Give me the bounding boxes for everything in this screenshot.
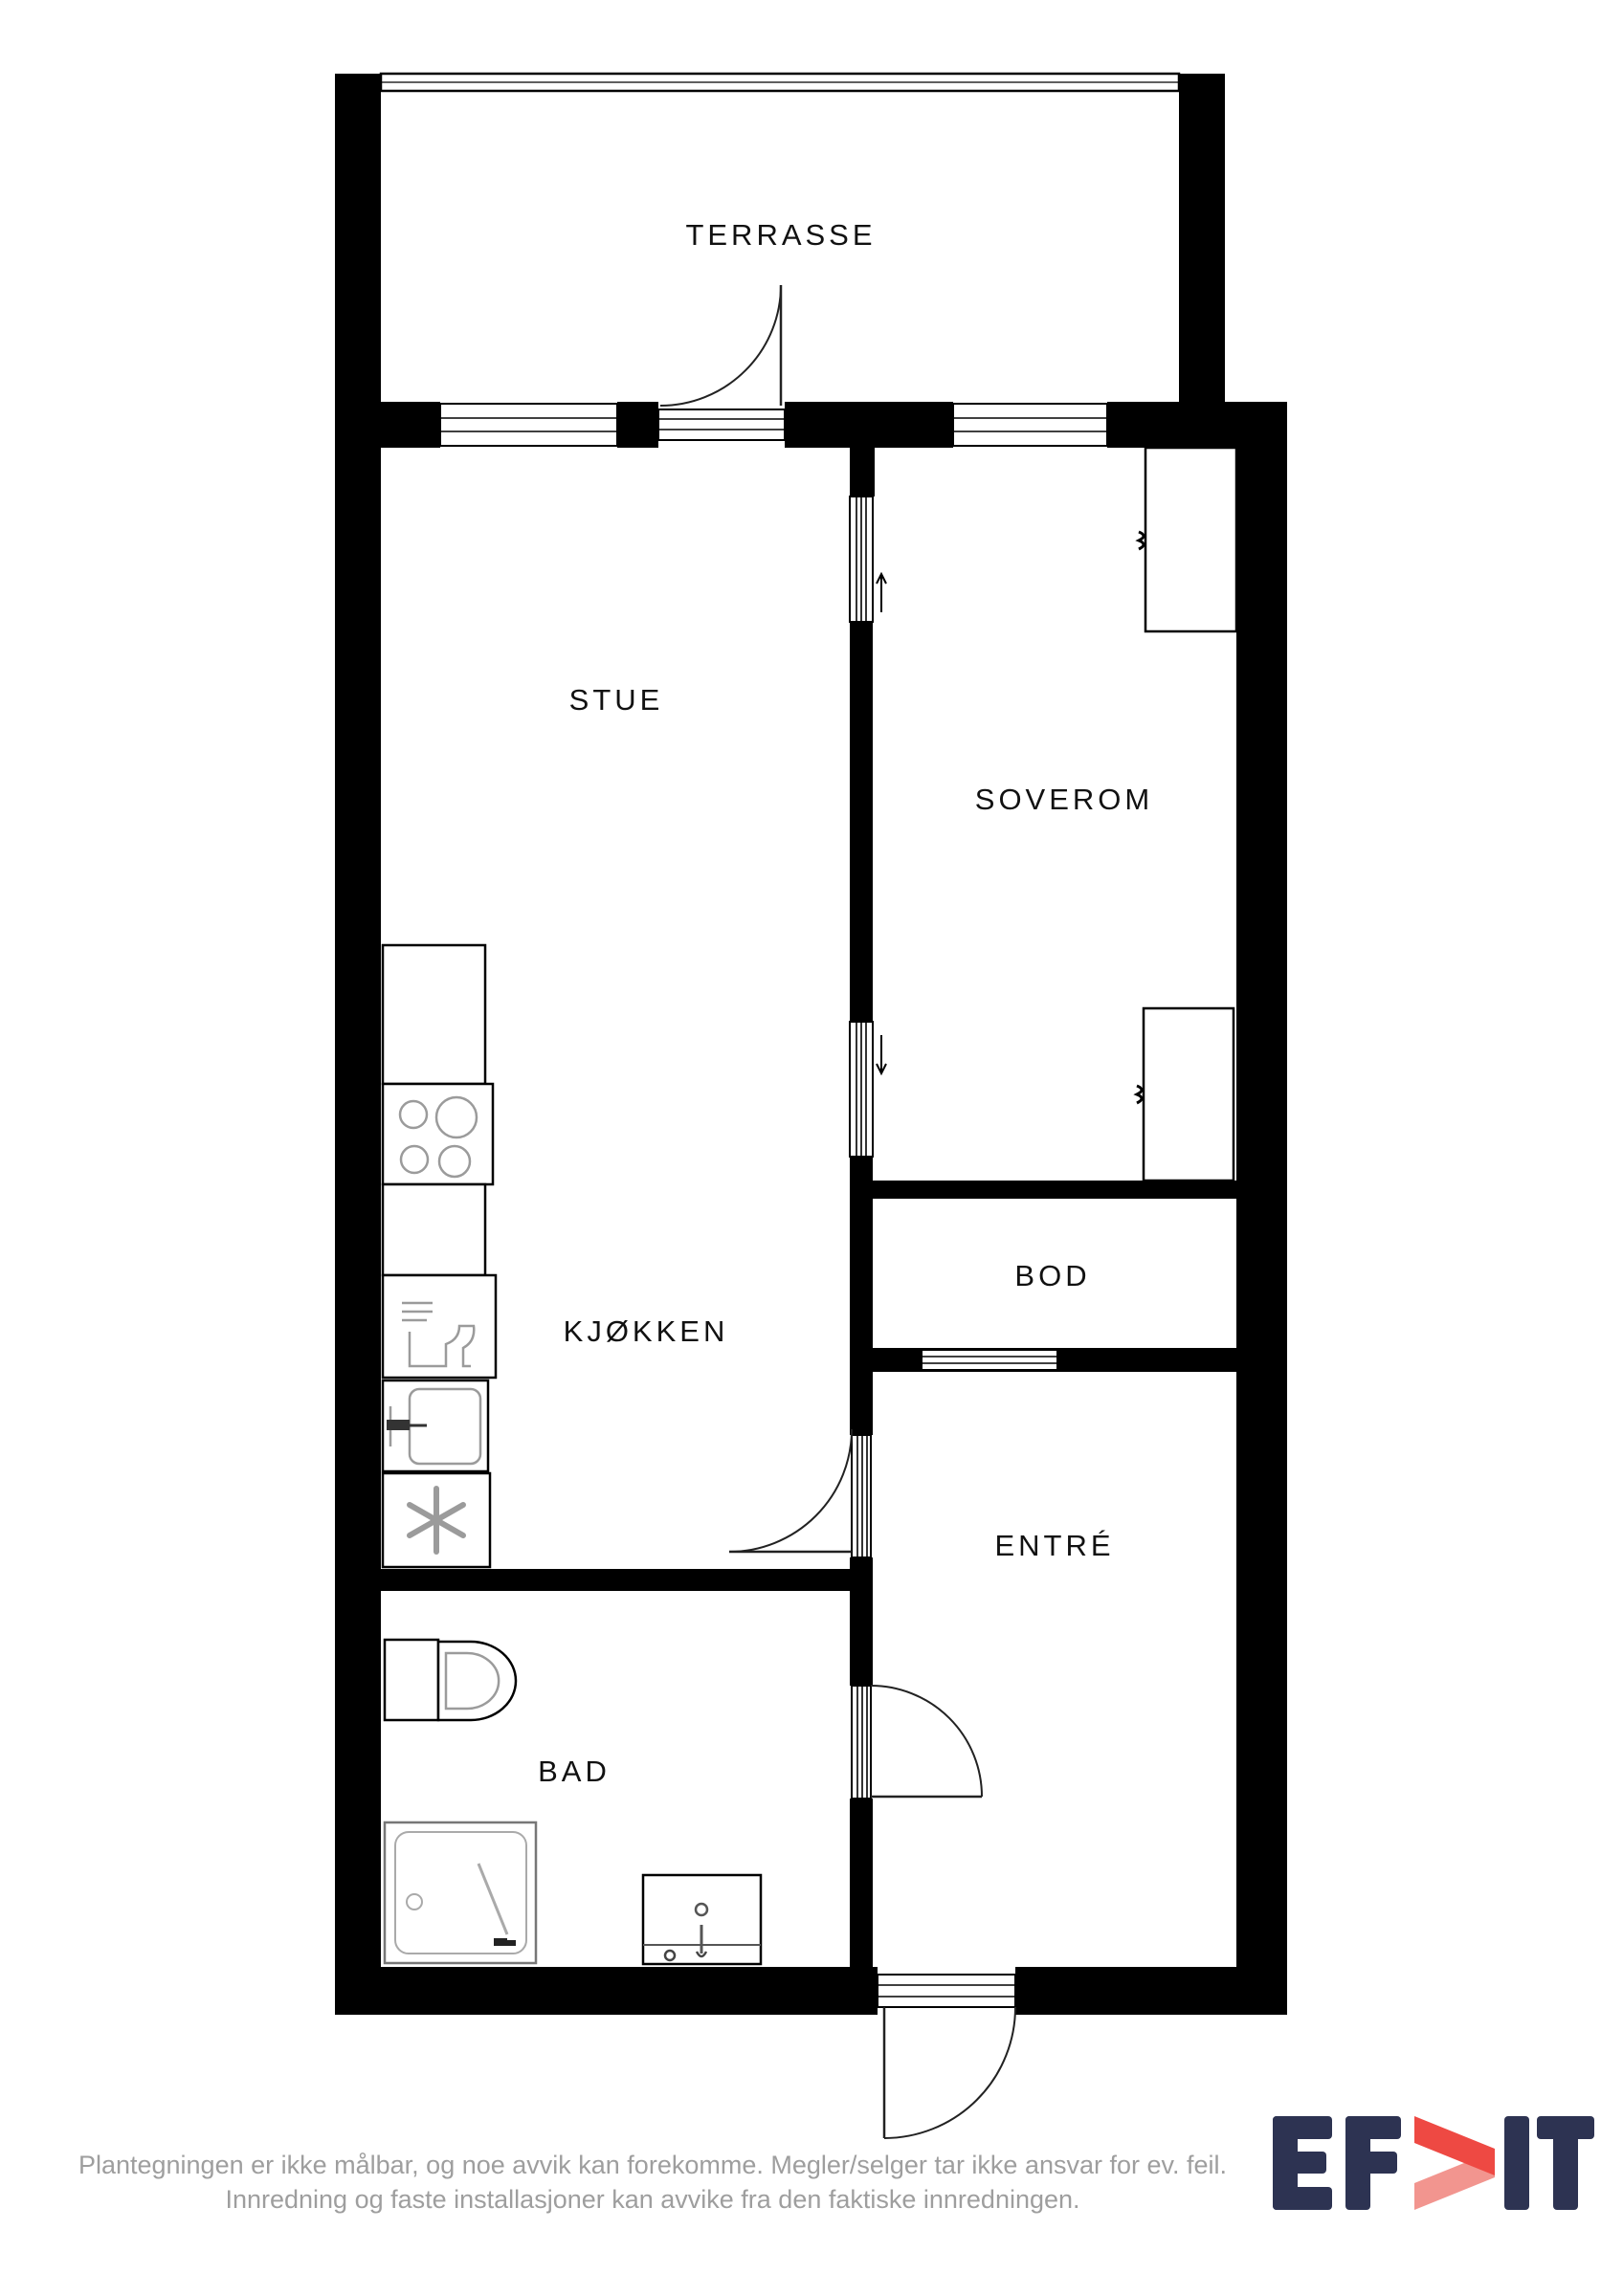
wall-interior-pier3 [850,1799,873,1967]
wall-interior-pier2 [850,1557,873,1686]
floorplan-drawing: TERRASSE STUE SOVEROM KJØKKEN BOD ENTRÉ … [0,0,1623,2296]
wall-bath-top [381,1569,850,1591]
logo-chevron-icon [1414,2116,1495,2210]
label-kjokken: KJØKKEN [564,1314,729,1348]
kitchen-counter [383,945,485,1084]
cooktop-burners-icon [383,1084,493,1184]
floorplan-page: TERRASSE STUE SOVEROM KJØKKEN BOD ENTRÉ … [0,0,1623,2296]
wardrobe-icon [1139,448,1236,631]
label-stue: STUE [569,683,664,717]
wall-right [1236,402,1287,2015]
label-soverom: SOVEROM [975,783,1153,816]
kitchen-fixtures [383,945,496,1567]
wall-soverom-bod [873,1181,1236,1199]
door-swing-arc-icon [884,2007,1015,2138]
bathroom-sink-icon [643,1875,761,1964]
window-soverom [953,404,1107,446]
fridge-snowflake-icon [383,1473,490,1567]
bod-door [922,1350,1057,1370]
kitchen-door [729,1429,871,1557]
label-bod: BOD [1014,1259,1090,1292]
door-swing-arc-icon [660,285,781,406]
wall-stub [850,448,875,497]
wall-bottom-left [335,1967,878,2015]
wall-interior-mid [850,622,873,1022]
wall-bottom-right [1015,1967,1287,2015]
door-swing-arc-icon [729,1429,852,1552]
wardrobe-icon [1137,1008,1234,1181]
front-door [878,1975,1015,2138]
logo-letter-t [1537,2116,1594,2210]
wall-divider-pier [617,402,658,448]
label-bad: BAD [538,1755,611,1788]
kitchen-counter [383,1184,485,1275]
terrace-railing [381,74,1179,91]
label-entre: ENTRÉ [994,1529,1114,1562]
shower-icon [385,1822,536,1963]
wall-terrace-right [1179,74,1225,448]
wall-left [335,74,381,2015]
door-swing-arc-icon [871,1686,982,1797]
disclaimer-line1: Plantegningen er ikke målbar, og noe avv… [78,2151,1227,2179]
disclaimer-line2: Innredning og faste installasjoner kan a… [225,2185,1079,2214]
terrace-door [658,285,785,440]
sliding-direction-arrow-icon [877,574,886,612]
kitchen-sink-icon [383,1380,488,1471]
efkt-logo [1273,2116,1594,2210]
wall-divider-seg3 [1107,402,1287,448]
wall-divider-seg2 [785,402,953,448]
logo-letter-e [1273,2116,1332,2210]
window-stue [440,404,617,446]
footer-disclaimer: Plantegningen er ikke målbar, og noe avv… [78,2151,1227,2214]
sliding-direction-arrow-icon [877,1035,886,1073]
label-terrasse: TERRASSE [685,218,876,252]
sliding-partition-upper [850,497,886,622]
bathroom-fixtures [385,1640,761,1964]
logo-letter-i [1504,2116,1529,2210]
toilet-icon [385,1640,516,1720]
wall-divider-seg1 [335,402,440,448]
dishwasher-icon [383,1275,496,1378]
bathroom-door [852,1686,982,1799]
wall-interior-low [850,1157,873,1435]
logo-letter-f [1345,2116,1401,2210]
sliding-partition-lower [850,1022,886,1157]
